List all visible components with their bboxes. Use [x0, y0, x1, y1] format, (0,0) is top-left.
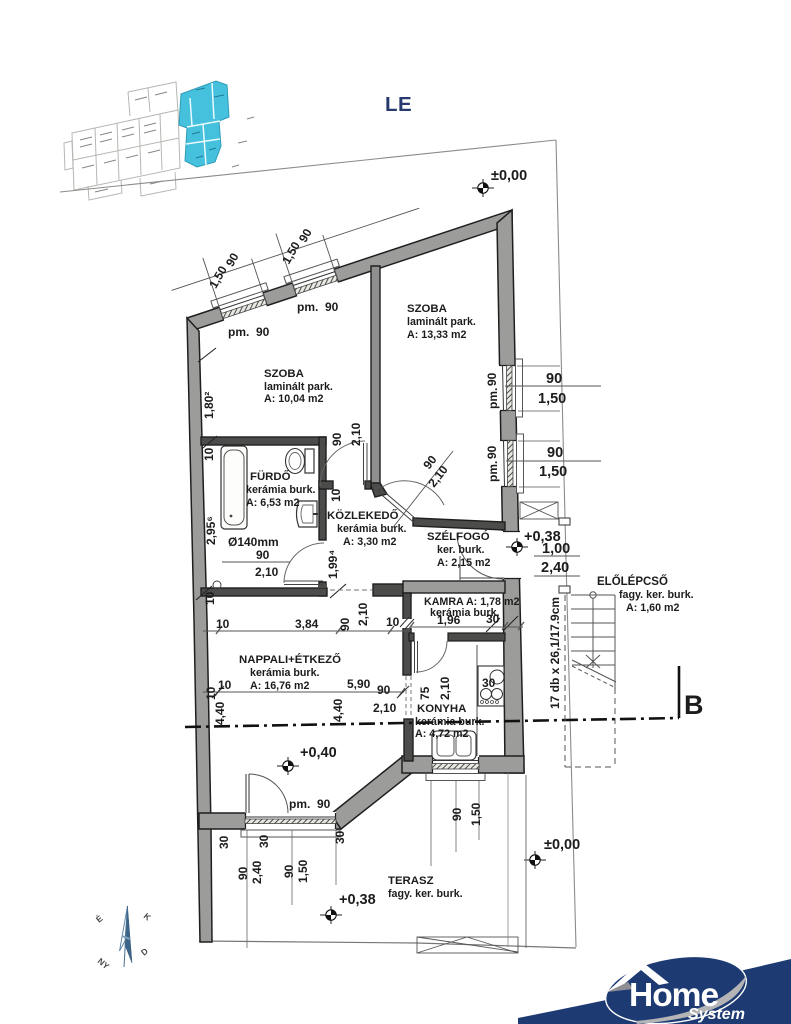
svg-text:1,50: 1,50 — [538, 391, 566, 407]
svg-text:1,50: 1,50 — [279, 239, 303, 267]
svg-text:90: 90 — [546, 371, 562, 387]
svg-text:fagy. ker. burk.: fagy. ker. burk. — [619, 589, 694, 601]
svg-text:30: 30 — [257, 834, 271, 848]
svg-text:pm. 90: pm. 90 — [228, 325, 270, 339]
svg-text:laminált park.: laminált park. — [407, 316, 476, 328]
svg-text:90: 90 — [296, 226, 315, 245]
svg-text:K: K — [142, 911, 154, 923]
svg-text:NAPPALI+ÉTKEZŐ: NAPPALI+ÉTKEZŐ — [239, 653, 341, 666]
svg-text:1,80²: 1,80² — [202, 392, 216, 419]
svg-text:pm. 90: pm. 90 — [297, 300, 339, 314]
svg-text:10: 10 — [204, 686, 218, 700]
svg-text:30: 30 — [217, 835, 231, 849]
svg-text:30: 30 — [486, 612, 500, 626]
svg-text:90: 90 — [450, 807, 464, 821]
svg-text:10: 10 — [202, 447, 216, 461]
svg-text:A: 10,04 m2: A: 10,04 m2 — [264, 393, 323, 405]
svg-text:90: 90 — [223, 250, 242, 269]
svg-text:2,10: 2,10 — [356, 602, 370, 626]
svg-text:1,50: 1,50 — [206, 263, 230, 291]
svg-text:laminált park.: laminált park. — [264, 381, 333, 393]
svg-text:LE: LE — [385, 93, 412, 116]
svg-text:KONYHA: KONYHA — [417, 703, 466, 715]
svg-text:SZOBA: SZOBA — [407, 303, 447, 315]
svg-text:A: 13,33 m2: A: 13,33 m2 — [407, 329, 466, 341]
svg-text:90: 90 — [338, 617, 352, 631]
svg-text:2,10: 2,10 — [349, 422, 363, 446]
svg-text:90: 90 — [256, 548, 270, 562]
svg-text:pm. 90: pm. 90 — [289, 797, 331, 811]
svg-text:kerámia burk.: kerámia burk. — [250, 667, 320, 679]
svg-text:±0,00: ±0,00 — [544, 837, 580, 853]
svg-text:4,40: 4,40 — [213, 701, 227, 725]
svg-text:90: 90 — [547, 445, 563, 461]
svg-text:2,10: 2,10 — [373, 701, 397, 715]
svg-text:1,50: 1,50 — [469, 802, 483, 826]
svg-text:10: 10 — [216, 617, 230, 631]
svg-text:4,40: 4,40 — [331, 698, 345, 722]
svg-text:fagy. ker. burk.: fagy. ker. burk. — [388, 888, 463, 900]
svg-text:+0,40: +0,40 — [300, 745, 337, 761]
svg-text:90: 90 — [485, 445, 499, 459]
svg-text:5,90: 5,90 — [347, 677, 371, 691]
svg-text:1,50: 1,50 — [539, 464, 567, 480]
svg-text:10: 10 — [386, 615, 400, 629]
svg-text:É: É — [94, 913, 105, 925]
svg-text:10: 10 — [203, 591, 217, 605]
svg-text:90: 90 — [330, 432, 344, 446]
svg-text:D: D — [139, 946, 150, 958]
svg-text:kerámia burk.: kerámia burk. — [246, 484, 316, 496]
svg-text:1,96: 1,96 — [437, 613, 461, 627]
svg-text:1,00: 1,00 — [542, 541, 570, 557]
svg-text:2,10: 2,10 — [255, 565, 279, 579]
svg-text:90: 90 — [377, 683, 391, 697]
svg-text:75: 75 — [418, 686, 432, 700]
svg-text:10: 10 — [329, 488, 343, 502]
svg-text:System: System — [688, 1006, 745, 1023]
svg-text:30: 30 — [333, 830, 347, 844]
svg-text:NY: NY — [96, 956, 112, 971]
svg-text:90: 90 — [282, 864, 296, 878]
svg-text:A: 1,60 m2: A: 1,60 m2 — [626, 602, 680, 614]
svg-text:SZOBA: SZOBA — [264, 368, 304, 380]
svg-text:B: B — [684, 690, 704, 720]
svg-text:17 db x 26,1/17.9cm: 17 db x 26,1/17.9cm — [548, 597, 562, 709]
svg-text:FÜRDŐ: FÜRDŐ — [250, 470, 291, 483]
svg-text:KÖZLEKEDŐ: KÖZLEKEDŐ — [327, 509, 399, 522]
svg-text:1,99⁴: 1,99⁴ — [326, 550, 340, 579]
svg-text:ELŐLÉPCSŐ: ELŐLÉPCSŐ — [597, 575, 668, 588]
svg-text:2,40: 2,40 — [250, 860, 264, 884]
svg-text:90: 90 — [236, 866, 250, 880]
svg-text:A: 3,30 m2: A: 3,30 m2 — [343, 536, 397, 548]
svg-text:+0,38: +0,38 — [339, 892, 376, 908]
svg-text:10: 10 — [218, 678, 232, 692]
svg-text:TERASZ: TERASZ — [388, 875, 434, 887]
svg-text:2,10: 2,10 — [438, 676, 452, 700]
svg-text:A: 2,15 m2: A: 2,15 m2 — [437, 557, 491, 569]
svg-text:30: 30 — [482, 676, 496, 690]
svg-text:kerámia burk.: kerámia burk. — [337, 523, 407, 535]
svg-text:1,50: 1,50 — [296, 859, 310, 883]
svg-text:3,84: 3,84 — [295, 617, 319, 631]
svg-text:pm.: pm. — [486, 461, 500, 482]
svg-text:Ø140mm: Ø140mm — [228, 535, 279, 549]
svg-text:pm.: pm. — [486, 388, 500, 409]
svg-text:A: 16,76 m2: A: 16,76 m2 — [250, 680, 309, 692]
svg-text:±0,00: ±0,00 — [491, 168, 527, 184]
svg-text:A: 4,72 m2: A: 4,72 m2 — [415, 728, 469, 740]
svg-text:90: 90 — [485, 372, 499, 386]
svg-text:ker. burk.: ker. burk. — [437, 544, 485, 556]
svg-text:2,95⁶: 2,95⁶ — [204, 516, 218, 545]
svg-text:SZÉLFOGÓ: SZÉLFOGÓ — [427, 530, 490, 543]
svg-text:2,40: 2,40 — [541, 560, 569, 576]
svg-text:A: 6,53 m2: A: 6,53 m2 — [246, 497, 300, 509]
